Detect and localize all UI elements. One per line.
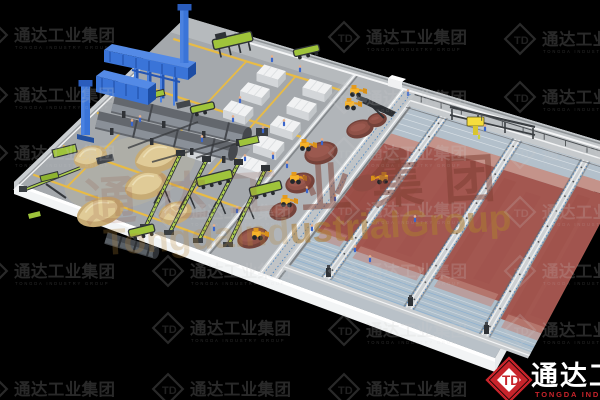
svg-text:TONGDA INDUSTRY GROUP: TONGDA INDUSTRY GROUP [15, 45, 109, 50]
svg-text:TD: TD [514, 93, 529, 105]
svg-text:TONGDA INDUSTRY GROUP: TONGDA INDUSTRY GROUP [367, 108, 461, 113]
svg-text:通达工业集团: 通达工业集团 [14, 25, 115, 45]
svg-text:通达工业集团: 通达工业集团 [542, 320, 600, 340]
svg-text:TD: TD [338, 326, 353, 338]
svg-text:通达工业集团: 通达工业集团 [190, 379, 291, 399]
svg-text:通达工业集团: 通达工业集团 [366, 88, 467, 108]
svg-text:TONGDA INDUSTRY GROUP: TONGDA INDUSTRY GROUP [543, 340, 600, 345]
svg-text:TONGDA INDUSTRY GROUP: TONGDA INDUSTRY GROUP [367, 281, 461, 286]
svg-text:通达工业集团: 通达工业集团 [366, 143, 467, 163]
svg-text:通达工业集团: 通达工业集团 [366, 200, 467, 220]
svg-text:TONGDA INDUSTRY GROUP: TONGDA INDUSTRY GROUP [543, 163, 600, 168]
svg-text:TONGDA INDUSTRY GROUP: TONGDA INDUSTRY GROUP [367, 220, 461, 225]
svg-text:通达工业集团: 通达工业集团 [542, 202, 600, 222]
svg-text:TD: TD [338, 385, 353, 397]
svg-text:通达工业集团: 通达工业集团 [14, 379, 115, 399]
svg-text:TD: TD [162, 385, 177, 397]
svg-text:TONGDA INDUSTRY GROUP: TONGDA INDUSTRY GROUP [191, 222, 285, 227]
svg-text:TD: TD [338, 33, 353, 45]
svg-text:TONGDA INDUSTRY GROUP: TONGDA INDUSTRY GROUP [15, 163, 109, 168]
svg-text:通达工业集团: 通达工业集团 [190, 261, 291, 281]
svg-text:TONGDA INDUSTRY GROUP: TONGDA INDUSTRY GROUP [543, 222, 600, 227]
svg-text:TONGDA INDUSTRY GROUP: TONGDA INDUSTRY GROUP [191, 338, 285, 343]
svg-text:TONGDA INDUSTRY GROUP: TONGDA INDUSTRY GROUP [15, 281, 109, 286]
svg-text:TD: TD [0, 31, 1, 43]
svg-text:TD: TD [338, 94, 353, 106]
svg-text:TD: TD [514, 267, 529, 279]
svg-text:TD: TD [338, 206, 353, 218]
svg-text:TD: TD [514, 326, 529, 338]
svg-text:通达工业集团: 通达工业集团 [190, 202, 291, 222]
svg-text:TD: TD [162, 267, 177, 279]
svg-text:通达工业集团: 通达工业集团 [366, 320, 467, 340]
svg-text:通达工业集团: 通达工业集团 [14, 85, 115, 105]
svg-text:通达工业集团: 通达工业集团 [366, 261, 467, 281]
svg-text:TD: TD [514, 208, 529, 220]
svg-text:TONGDA INDUSTRY GROUP: TONGDA INDUSTRY GROUP [543, 107, 600, 112]
svg-text:TD: TD [162, 324, 177, 336]
svg-text:TD: TD [338, 267, 353, 279]
svg-text:TD: TD [502, 373, 520, 388]
svg-text:通达工业集团: 通达工业集团 [366, 379, 467, 399]
svg-text:通达工业集团: 通达工业集团 [14, 261, 115, 281]
svg-text:通达工业集团: 通达工业集团 [542, 87, 600, 107]
svg-text:通达工业集团: 通达工业集团 [14, 143, 115, 163]
svg-text:通达工业集团: 通达工业集团 [366, 27, 467, 47]
svg-text:TONGDA INDUSTRY GROUP: TONGDA INDUSTRY GROUP [543, 281, 600, 286]
svg-text:TONGDA INDUSTRY GROUP: TONGDA INDUSTRY GROUP [367, 47, 461, 52]
svg-text:TONGDA INDUSTRY GROUP: TONGDA INDUSTRY GROUP [367, 163, 461, 168]
svg-text:TD: TD [0, 385, 1, 397]
svg-text:通达工业集团: 通达工业集团 [542, 143, 600, 163]
svg-text:TONGDA INDUS: TONGDA INDUS [535, 390, 600, 399]
svg-text:TD: TD [0, 149, 1, 161]
svg-text:通达工业集团: 通达工业集团 [542, 29, 600, 49]
svg-text:TONGDA INDUSTRY GROUP: TONGDA INDUSTRY GROUP [367, 340, 461, 345]
svg-text:TD: TD [338, 149, 353, 161]
svg-text:TD: TD [514, 35, 529, 47]
svg-text:TD: TD [514, 149, 529, 161]
svg-text:TONGDA INDUSTRY GROUP: TONGDA INDUSTRY GROUP [15, 105, 109, 110]
svg-text:TONGDA INDUSTRY GROUP: TONGDA INDUSTRY GROUP [543, 49, 600, 54]
svg-text:TD: TD [0, 91, 1, 103]
svg-text:通达工业集团: 通达工业集团 [542, 261, 600, 281]
svg-text:TONGDA INDUSTRY GROUP: TONGDA INDUSTRY GROUP [191, 281, 285, 286]
svg-text:通达工业: 通达工业 [531, 361, 600, 391]
svg-text:通达工业集团: 通达工业集团 [190, 318, 291, 338]
svg-text:TD: TD [162, 208, 177, 220]
svg-text:TD: TD [0, 267, 1, 279]
